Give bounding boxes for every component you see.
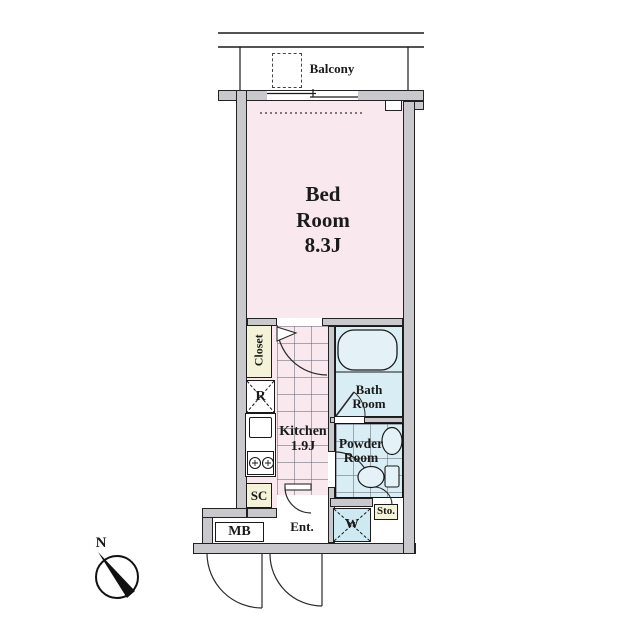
wall-right	[403, 101, 415, 554]
bathroom-label-line1: Bath	[335, 383, 403, 397]
shoe-closet-label: SC	[246, 489, 272, 503]
washer-label: W	[333, 518, 371, 533]
ac-unit-box	[272, 53, 302, 88]
kitchen-floor	[277, 326, 328, 495]
wall-under-shoe-closet	[247, 508, 277, 518]
bedroom-size: 8.3J	[263, 233, 383, 259]
compass-north-label: N	[92, 536, 110, 552]
floor-plan: Balcony Bed Room 8.3J Closet R Kitchen 1…	[0, 0, 640, 640]
compass-circle	[96, 556, 138, 598]
wall-bedroom-bottom-right	[322, 318, 403, 326]
bathroom-label-line2: Room	[335, 397, 403, 411]
wall-bath-powder-left	[330, 417, 335, 423]
entrance-label: Ent.	[283, 520, 321, 534]
compass	[96, 552, 138, 598]
powder-room-label: Powder Room	[331, 437, 391, 465]
storage-label: Sto.	[374, 506, 398, 518]
bathroom-label: Bath Room	[335, 383, 403, 410]
kitchen-size: 1.9J	[278, 440, 328, 455]
north-needle-icon	[98, 552, 135, 598]
entrance-door	[270, 554, 322, 606]
wall-kitchen-bath-upper	[328, 326, 335, 452]
bedroom-window	[267, 91, 358, 100]
bedroom-label: Bed Room 8.3J	[263, 182, 383, 259]
wall-bottom	[193, 543, 416, 554]
wall-top-right-block	[414, 101, 424, 110]
kitchen-sink	[249, 417, 272, 438]
powder-room-label-line2: Room	[331, 451, 391, 465]
refrigerator-label: R	[246, 390, 275, 405]
bedroom-label-line2: Room	[263, 208, 383, 234]
powder-room-label-line1: Powder	[331, 437, 391, 451]
wall-powder-bottom	[330, 498, 373, 507]
bedroom-label-line1: Bed	[263, 182, 383, 208]
stove	[247, 451, 274, 475]
balcony-label: Balcony	[305, 62, 359, 76]
kitchen-label: Kitchen 1.9J	[278, 425, 328, 454]
meter-box-label: MB	[215, 525, 264, 540]
closet-label: Closet	[253, 325, 266, 375]
kitchen-label-text: Kitchen	[278, 425, 328, 440]
wall-bath-powder-right	[364, 417, 403, 423]
wall-niche	[385, 100, 402, 111]
meter-box-door	[207, 554, 262, 608]
